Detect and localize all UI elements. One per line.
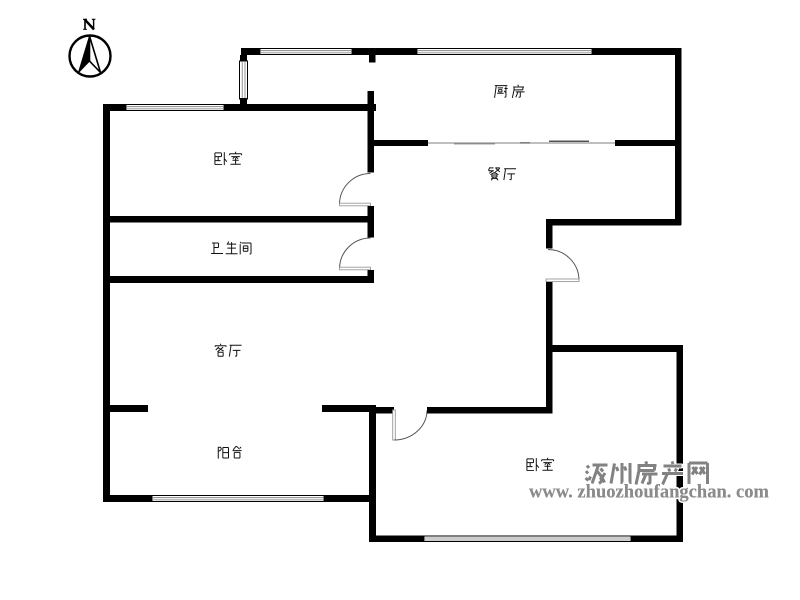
svg-text:www. zhuozhoufangchan. com: www. zhuozhoufangchan. com [529, 483, 770, 503]
